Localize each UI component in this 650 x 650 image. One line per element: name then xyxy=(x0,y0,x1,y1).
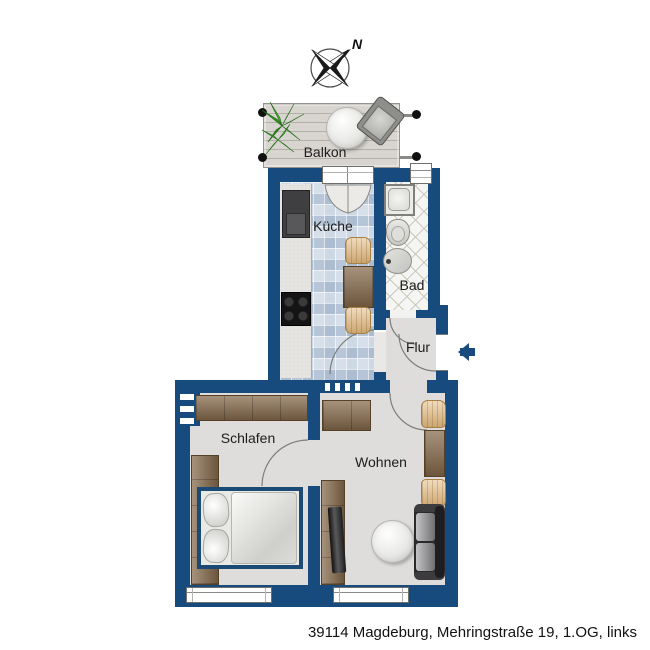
window-frame-line xyxy=(411,170,431,171)
railing-post xyxy=(412,152,421,161)
sofa-backrest xyxy=(435,506,444,578)
balcony-door-window xyxy=(322,166,374,184)
kitchen-table xyxy=(343,266,374,308)
shaft-slot xyxy=(180,394,194,400)
wardrobe xyxy=(195,395,308,421)
room-label-wohnen: Wohnen xyxy=(355,454,407,470)
window-frame-line xyxy=(339,588,340,602)
window-frame-line xyxy=(411,177,431,178)
room-label-balkon: Balkon xyxy=(304,144,347,160)
wall-jog xyxy=(428,305,448,318)
kitchen-chair-top xyxy=(345,237,371,264)
wall-room-divider-top xyxy=(308,393,320,440)
wall-right-hall-top xyxy=(436,318,448,334)
door-gap-kitchen-hall xyxy=(374,332,386,372)
toilet-seat xyxy=(391,226,405,242)
sink-tap xyxy=(386,259,391,264)
door-gap-bedroom xyxy=(308,440,320,486)
double-bed xyxy=(197,487,303,569)
bathroom-window xyxy=(410,163,432,184)
kitchen-chair-bottom xyxy=(345,307,371,334)
shaft-slot xyxy=(325,383,330,391)
door-gap-bath xyxy=(390,310,416,318)
window-frame-line xyxy=(323,172,373,173)
fridge-door xyxy=(286,213,306,235)
window-frame-line xyxy=(402,588,403,602)
entrance-door-opening xyxy=(436,334,448,371)
room-label-flur: Flur xyxy=(406,339,430,355)
sideboard xyxy=(322,400,371,431)
wall-left-upper xyxy=(268,182,280,380)
shaft-slot xyxy=(180,418,194,424)
wall-right-bath xyxy=(428,168,440,318)
wall-top-lower-right xyxy=(427,380,458,393)
room-label-bad: Bad xyxy=(400,277,425,293)
window-frame-line xyxy=(347,167,348,183)
toilet xyxy=(386,219,410,246)
wall-room-divider-bottom xyxy=(308,486,320,585)
window-frame-line xyxy=(265,588,266,602)
shaft-slot xyxy=(335,383,340,391)
duvet xyxy=(231,492,297,564)
floor-plan: N Balkon xyxy=(0,0,650,650)
room-label-kueche: Küche xyxy=(313,218,353,234)
window-frame-line xyxy=(192,588,193,602)
wall-bath-bottom-right xyxy=(416,310,428,318)
sink xyxy=(383,248,412,274)
fridge xyxy=(282,190,310,238)
stove xyxy=(281,292,311,326)
address-caption: 39114 Magdeburg, Mehringstraße 19, 1.OG,… xyxy=(308,624,637,641)
dining-table xyxy=(424,430,445,477)
shower xyxy=(384,184,415,216)
shower-tray xyxy=(388,188,410,211)
pillow xyxy=(202,492,230,528)
livingroom-window xyxy=(333,587,409,603)
shaft-slot xyxy=(180,406,194,412)
entrance-arrow-icon xyxy=(449,343,476,361)
room-label-schlafen: Schlafen xyxy=(221,430,275,446)
sofa-cushion xyxy=(416,513,435,541)
window-frame-line xyxy=(187,592,271,593)
shaft-slot xyxy=(345,383,350,391)
door-gap-living xyxy=(390,380,427,393)
round-rug xyxy=(371,520,414,563)
wall-right-lower xyxy=(445,393,458,607)
pillow xyxy=(202,528,230,564)
dining-chair-top xyxy=(421,400,446,428)
entrance-arrow-shaft xyxy=(460,348,475,356)
bedroom-window xyxy=(186,587,272,603)
shaft-slot xyxy=(355,383,360,391)
window-frame-line xyxy=(334,592,408,593)
railing-post xyxy=(412,110,421,119)
sofa xyxy=(414,504,445,580)
sofa-cushion xyxy=(416,543,435,571)
